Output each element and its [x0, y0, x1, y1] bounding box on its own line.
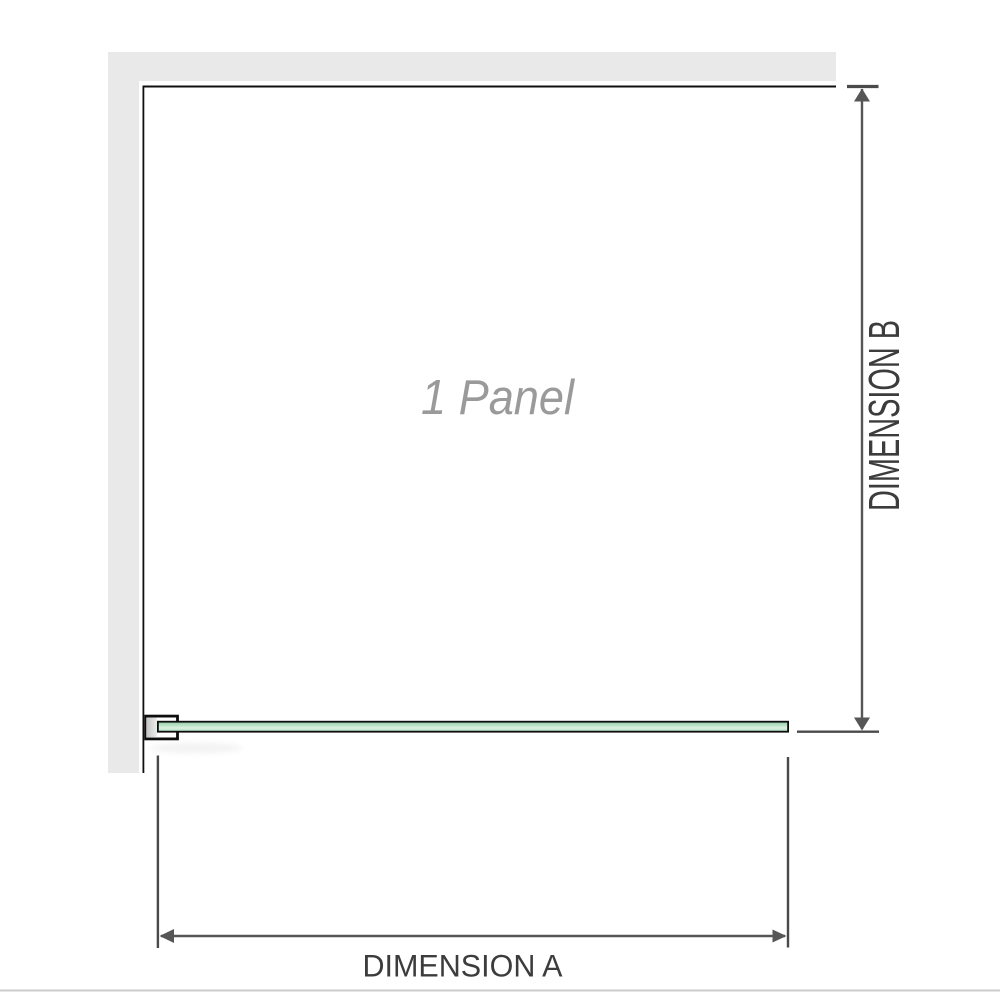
- svg-text:DIMENSION A: DIMENSION A: [363, 948, 564, 984]
- svg-text:1 Panel: 1 Panel: [421, 370, 576, 425]
- svg-text:DIMENSION B: DIMENSION B: [860, 320, 909, 511]
